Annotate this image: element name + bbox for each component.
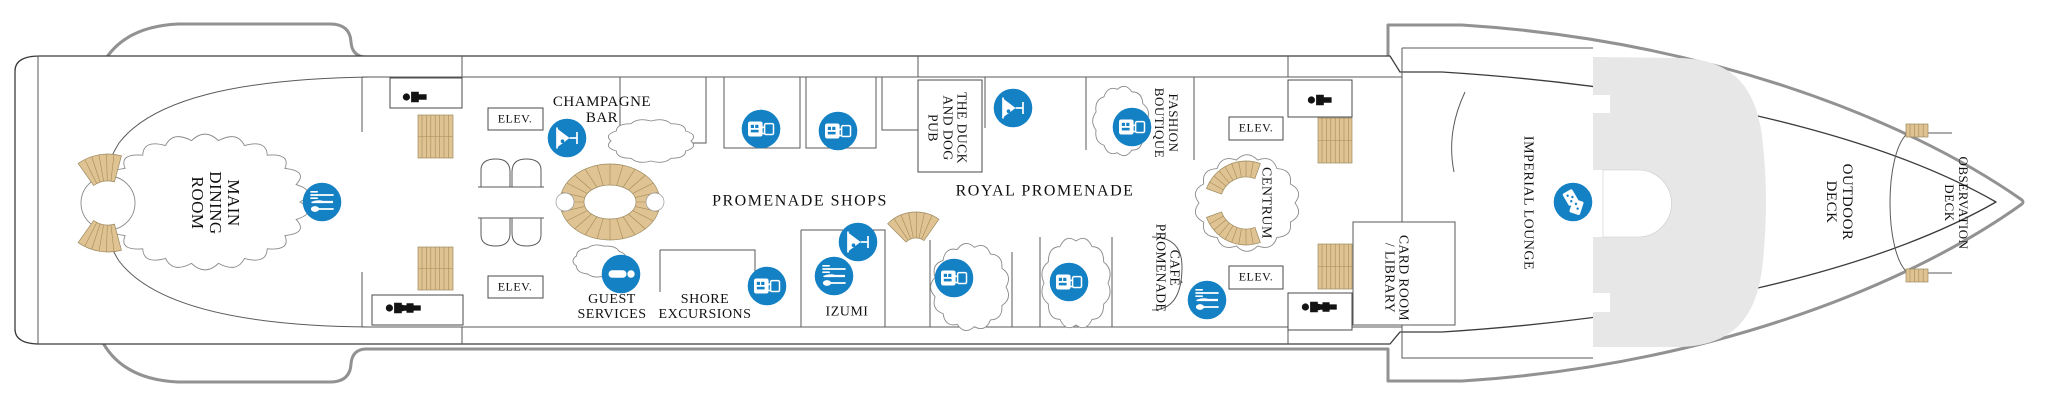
- label-fashion-boutique: FASHION BOUTIQUE: [1152, 88, 1180, 158]
- label-main-dining-room: MAIN DINING ROOM: [188, 171, 242, 234]
- deck-plan: MAIN DINING ROOM CHAMPAGNE BAR ELEV. ELE…: [0, 0, 2048, 407]
- bridge-notch: [1603, 170, 1672, 237]
- label-outdoor-deck: OUTDOOR DECK: [1822, 164, 1854, 241]
- information-icon: [601, 254, 641, 294]
- label-elevator: ELEV.: [1239, 271, 1274, 284]
- staircase: [1906, 124, 1928, 137]
- label-shore-excursions: SHORE EXCURSIONS: [659, 293, 752, 323]
- label-royal-promenade: ROYAL PROMENADE: [956, 184, 1135, 201]
- dining-icon: [1187, 280, 1227, 320]
- shopping-icon: [934, 258, 974, 298]
- label-duck-and-dog-pub: THE DUCK AND DOG PUB: [926, 92, 969, 164]
- label-card-room-library: CARD ROOM / LIBRARY: [1382, 235, 1411, 321]
- label-elevator: ELEV.: [1239, 122, 1274, 135]
- dining-icon: [814, 256, 854, 296]
- restroom-icon: [384, 288, 424, 328]
- shopping-icon: [747, 266, 787, 306]
- label-promenade-shops: PROMENADE SHOPS: [712, 194, 888, 211]
- label-champagne-bar: CHAMPAGNE BAR: [553, 95, 651, 127]
- shopping-icon: [818, 111, 858, 151]
- entertainment-icon: [1553, 182, 1593, 222]
- restroom-icon: [1300, 287, 1340, 327]
- stern-landing: [81, 176, 135, 230]
- bar-icon: [993, 88, 1033, 128]
- label-imperial-lounge: IMPERIAL LOUNGE: [1520, 136, 1535, 270]
- label-cafe-promenade: CAFÉ PROMENADE: [1153, 224, 1182, 313]
- label-guest-services: GUEST SERVICES: [577, 293, 646, 323]
- label-elevator: ELEV.: [498, 113, 533, 126]
- label-observation-deck: OBSERVATION DECK: [1942, 156, 1970, 249]
- shopping-icon: [1112, 107, 1152, 147]
- staircase: [1906, 269, 1928, 282]
- dining-icon: [302, 182, 342, 222]
- label-izumi: IZUMI: [826, 306, 869, 321]
- label-elevator: ELEV.: [498, 281, 533, 294]
- restroom-icon: [396, 77, 436, 117]
- restroom-icon: [1301, 80, 1341, 120]
- shopping-icon: [741, 109, 781, 149]
- shopping-icon: [1049, 262, 1089, 302]
- label-centrum: CENTRUM: [1258, 167, 1273, 239]
